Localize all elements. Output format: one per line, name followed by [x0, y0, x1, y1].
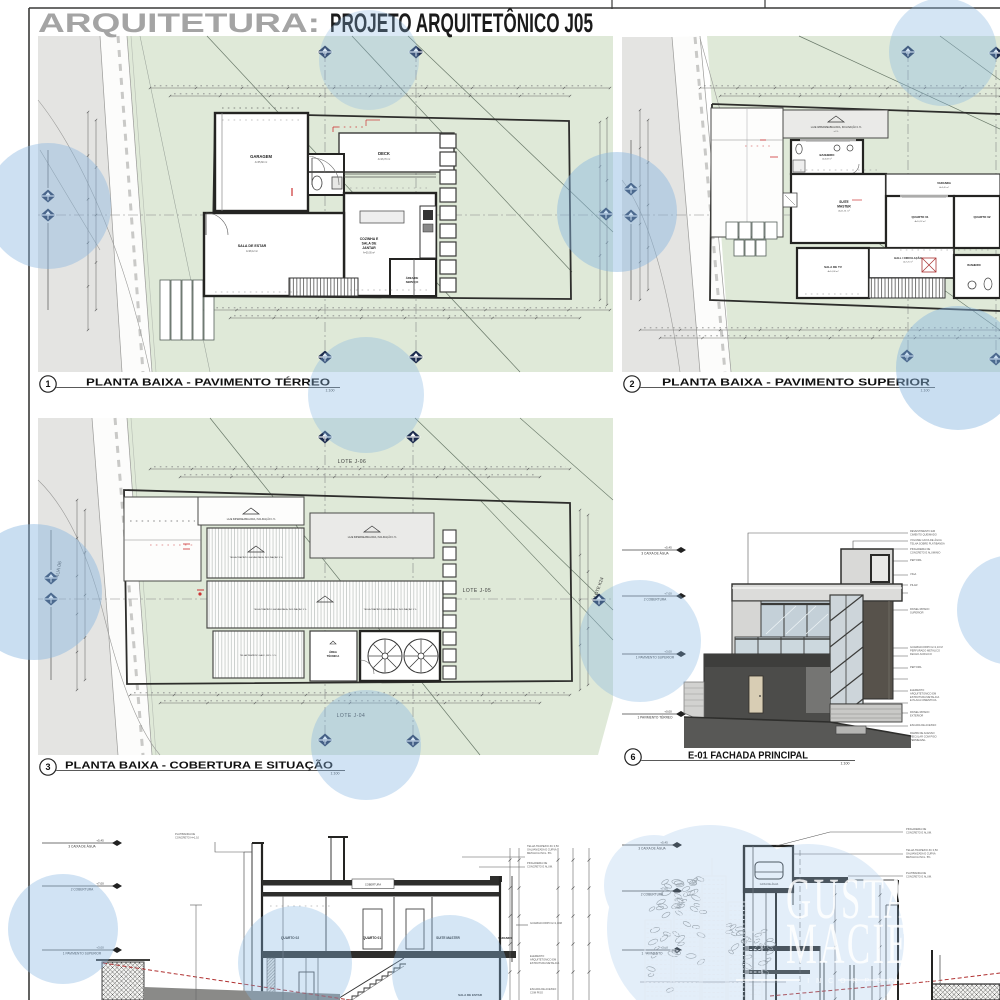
svg-text:PLANTA BAIXA - PAVIMENTO SUPER: PLANTA BAIXA - PAVIMENTO SUPERIOR	[662, 378, 931, 389]
svg-text:SUPERIOR: SUPERIOR	[910, 610, 924, 614]
svg-text:LAJE IMPERMEABILIZADA, INCLINA: LAJE IMPERMEABILIZADA, INCLINAÇÃO 1 %	[811, 126, 862, 129]
svg-text:I N C O R P O R A D O S: I N C O R P O R A D O S	[807, 978, 943, 985]
svg-text:GUARDACORPO H=1,10 M: GUARDACORPO H=1,10 M	[910, 645, 943, 649]
svg-text:ESTRUTURA METALICA: ESTRUTURA METALICA	[910, 695, 939, 699]
svg-text:DECK: DECK	[378, 151, 390, 156]
svg-text:QUARTO 01: QUARTO 01	[363, 936, 381, 940]
svg-text:VIGA: VIGA	[910, 572, 916, 576]
svg-text:VEICULAR COM PISO: VEICULAR COM PISO	[910, 734, 937, 738]
svg-text:E-01 FACHADA PRINCIPAL: E-01 FACHADA PRINCIPAL	[688, 751, 808, 762]
svg-text:TÉCNICA: TÉCNICA	[327, 653, 339, 658]
svg-text:A=10,92 m²: A=10,92 m²	[915, 220, 926, 223]
svg-text:TELHA TRAPÉZIO GALVANIZADA, IN: TELHA TRAPÉZIO GALVANIZADA, INCLINAÇÃO 5…	[364, 608, 417, 611]
svg-text:ARQUITETONICO EM: ARQUITETONICO EM	[530, 957, 556, 961]
svg-text:PAINEL RIPADO: PAINEL RIPADO	[910, 710, 929, 714]
svg-text:PEITORIL: PEITORIL	[910, 558, 922, 562]
svg-text:ESCADA DE ACESSO: ESCADA DE ACESSO	[530, 987, 556, 991]
svg-text:CONCRETO E ALUMINIO: CONCRETO E ALUMINIO	[910, 550, 940, 554]
svg-text:VOLUME CAIXA DE ÁGUA: VOLUME CAIXA DE ÁGUA	[910, 538, 942, 542]
svg-text:2: 2	[629, 379, 634, 389]
svg-text:SERVIÇO: SERVIÇO	[406, 280, 419, 284]
svg-text:1: 1	[45, 379, 50, 389]
svg-text:PILAR: PILAR	[910, 583, 918, 587]
svg-text:PERFURADO METALICO: PERFURADO METALICO	[910, 648, 940, 652]
svg-text:SUITE: SUITE	[839, 200, 848, 204]
svg-text:TELHA TRAPÉZIO GALV., INCL. 5: TELHA TRAPÉZIO GALV., INCL. 5 %	[240, 654, 276, 657]
svg-text:1:100: 1:100	[841, 762, 850, 766]
svg-text:3 CAIXA DE ÁGUA: 3 CAIXA DE ÁGUA	[68, 845, 96, 849]
svg-text:A=35,60 m²: A=35,60 m²	[255, 161, 268, 164]
svg-text:CONCRETO E ALUM.: CONCRETO E ALUM.	[527, 864, 553, 868]
svg-text:PAINEL RIPADO: PAINEL RIPADO	[910, 607, 929, 611]
svg-text:ELEMENTO: ELEMENTO	[530, 954, 544, 958]
svg-text:+0,00: +0,00	[664, 710, 672, 714]
svg-text:TELHA SOBRE PLATIBANDA: TELHA SOBRE PLATIBANDA	[910, 541, 945, 545]
svg-text:FECHO ACRILICO: FECHO ACRILICO	[910, 652, 932, 656]
svg-text:i=1%: i=1%	[834, 131, 839, 133]
svg-text:3: 3	[45, 762, 50, 772]
svg-text:A=14,08 m²: A=14,08 m²	[828, 270, 839, 273]
svg-text:PINGADEIRA DE: PINGADEIRA DE	[527, 861, 547, 865]
svg-text:ESTRUTURA METALICA: ESTRUTURA METALICA	[530, 961, 559, 965]
svg-text:EXTERIOR: EXTERIOR	[910, 713, 923, 717]
svg-text:PERMEAVEL: PERMEAVEL	[910, 738, 926, 742]
svg-text:QUARTO 02: QUARTO 02	[973, 215, 990, 219]
svg-text:METALICA INCL. 5%: METALICA INCL. 5%	[527, 851, 552, 855]
svg-text:A=16,70 m²: A=16,70 m²	[378, 158, 391, 161]
svg-text:QUARTO 01: QUARTO 01	[911, 215, 928, 219]
svg-text:1 PAVIMENTO TÉRREO: 1 PAVIMENTO TÉRREO	[637, 715, 673, 720]
svg-text:TELHA TRAPEZIO ZC 0,50: TELHA TRAPEZIO ZC 0,50	[527, 844, 559, 848]
svg-text:REVESTIMENTO EM: REVESTIMENTO EM	[910, 529, 935, 533]
svg-text:PINGADEIRA DE: PINGADEIRA DE	[906, 827, 926, 831]
svg-text:6: 6	[630, 752, 635, 762]
svg-text:A=28,12 m²: A=28,12 m²	[246, 250, 258, 253]
svg-text:E PLACA CIMENTICIA: E PLACA CIMENTICIA	[910, 698, 937, 702]
svg-text:+7,00: +7,00	[96, 882, 104, 886]
svg-text:GARAGEM: GARAGEM	[250, 154, 272, 159]
svg-text:LAJE IMPERMEABILIZADA, INCLINA: LAJE IMPERMEABILIZADA, INCLINAÇÃO 1 %	[348, 536, 397, 539]
svg-text:MACIEL: MACIEL	[786, 912, 934, 976]
svg-text:LOTE J-05: LOTE J-05	[463, 588, 492, 594]
svg-text:JANTAR: JANTAR	[362, 246, 376, 250]
svg-text:METALICA INCL. 5%: METALICA INCL. 5%	[906, 855, 931, 859]
svg-text:BANHEIRO: BANHEIRO	[967, 264, 980, 267]
svg-text:VARANDA: VARANDA	[937, 181, 951, 185]
svg-text:SALA DE: SALA DE	[362, 242, 377, 246]
svg-text:TELHA TRAPÉZIO GALVANIZADA, IN: TELHA TRAPÉZIO GALVANIZADA, INCLINAÇÃO 5…	[254, 608, 307, 611]
svg-text:COZINHA E: COZINHA E	[360, 237, 379, 241]
svg-text:PEITORIL: PEITORIL	[910, 665, 922, 669]
svg-text:ARQUITETONICO EM: ARQUITETONICO EM	[910, 691, 936, 695]
svg-text:A=21,61 m²: A=21,61 m²	[838, 209, 850, 212]
svg-text:RAMPA DE ACESSO: RAMPA DE ACESSO	[910, 731, 935, 735]
svg-text:GUARDACORPO H=1,10M: GUARDACORPO H=1,10M	[530, 921, 562, 925]
svg-text:GALVANIZADA E CURVA: GALVANIZADA E CURVA	[906, 851, 936, 855]
svg-text:COM PISO: COM PISO	[530, 990, 543, 994]
svg-text:PINGADEIRA DE: PINGADEIRA DE	[910, 547, 930, 551]
svg-text:BANHEIRO: BANHEIRO	[820, 153, 836, 157]
svg-text:CIMENTO QUEIMADO: CIMENTO QUEIMADO	[910, 532, 937, 536]
svg-text:PLANTA BAIXA - COBERTURA E SIT: PLANTA BAIXA - COBERTURA E SITUAÇÃO	[65, 759, 333, 772]
svg-text:CONCRETO H=1,10: CONCRETO H=1,10	[175, 835, 200, 839]
svg-text:SALA DE TV: SALA DE TV	[824, 265, 842, 269]
svg-text:LOTE J-06: LOTE J-06	[338, 459, 367, 465]
svg-text:TELHA TRAPÉZIO GALVANIZADA, IN: TELHA TRAPÉZIO GALVANIZADA, INCLINAÇÃO 5…	[230, 556, 283, 559]
svg-text:LAJE IMPERMEABILIZADA, INCLINA: LAJE IMPERMEABILIZADA, INCLINAÇÃO 1 %	[227, 518, 276, 521]
svg-text:SALA DE ESTAR: SALA DE ESTAR	[238, 244, 267, 248]
svg-text:PLATIBANDA DE: PLATIBANDA DE	[175, 832, 195, 836]
svg-text:A=30,05 m²: A=30,05 m²	[363, 252, 375, 255]
svg-text:CONCRETO E ALUM.: CONCRETO E ALUM.	[906, 830, 932, 834]
svg-text:GALVANIZADA E CURVA: GALVANIZADA E CURVA	[527, 847, 557, 851]
svg-text:ESCADA DE ACESSO: ESCADA DE ACESSO	[910, 723, 936, 727]
svg-text:COBERTURA: COBERTURA	[365, 883, 382, 887]
svg-text:+5,45: +5,45	[96, 839, 104, 843]
svg-text:A=9,40 m²: A=9,40 m²	[939, 186, 949, 189]
svg-text:MASTER: MASTER	[837, 204, 851, 208]
svg-text:+5,45: +5,45	[664, 546, 672, 550]
svg-text:PLANTA BAIXA - PAVIMENTO TÉRRE: PLANTA BAIXA - PAVIMENTO TÉRREO	[86, 376, 330, 389]
svg-text:TELHA TRAPEZIO ZC 0,50: TELHA TRAPEZIO ZC 0,50	[906, 848, 938, 852]
svg-text:A=6,08 m²: A=6,08 m²	[822, 158, 832, 161]
svg-text:A=7,25 m²: A=7,25 m²	[903, 261, 913, 264]
svg-text:3 CAIXA DE ÁGUA: 3 CAIXA DE ÁGUA	[641, 552, 669, 556]
svg-text:ARQUITETURA:: ARQUITETURA:	[38, 8, 320, 38]
svg-text:ELEMENTO: ELEMENTO	[910, 688, 924, 692]
